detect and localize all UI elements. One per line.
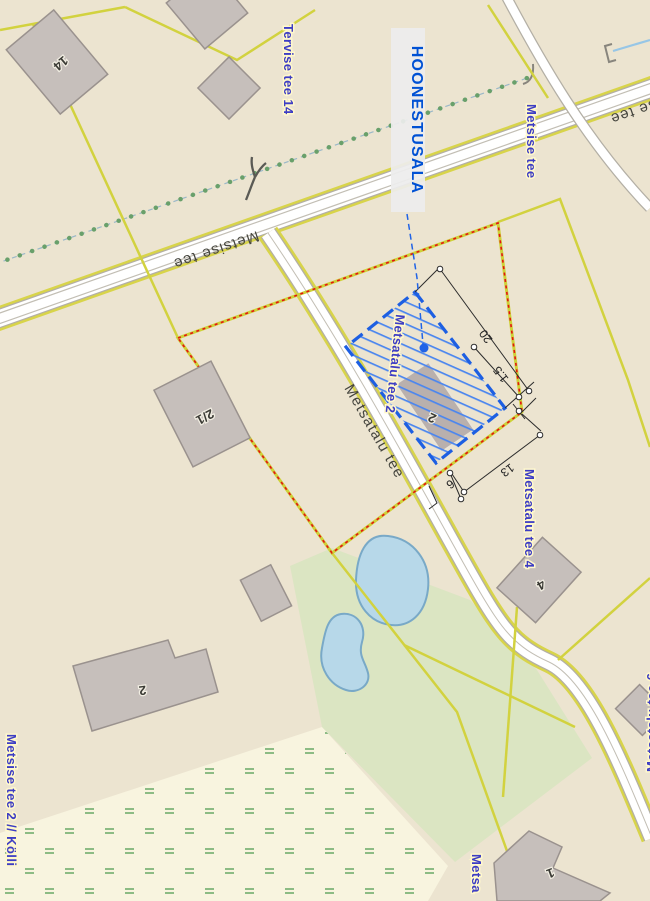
callout-anchor-dot [420,344,429,353]
map-canvas[interactable]: 20 1.5 13 6 Metsise tee Metsise tee Mets… [0,0,650,901]
hoonestusala-callout: HOONESTUSALA [391,28,425,212]
address-label-metsatalu-tee-6: Metsatalu tee 6 [644,673,650,772]
map-svg: 20 1.5 13 6 Metsise tee Metsise tee Mets… [0,0,650,901]
address-label-metsise-tee: Metsise tee [524,104,539,179]
address-label-metsa-partial: Metsa [469,854,484,893]
address-label-tervise-tee-14: Tervise tee 14 [281,24,296,115]
callout-label: HOONESTUSALA [408,46,425,195]
address-label-metsatalu-tee-4: Metsatalu tee 4 [522,469,537,569]
address-label-metsise-tee-2-kolli: Metsise tee 2 // Kölli [4,734,19,866]
